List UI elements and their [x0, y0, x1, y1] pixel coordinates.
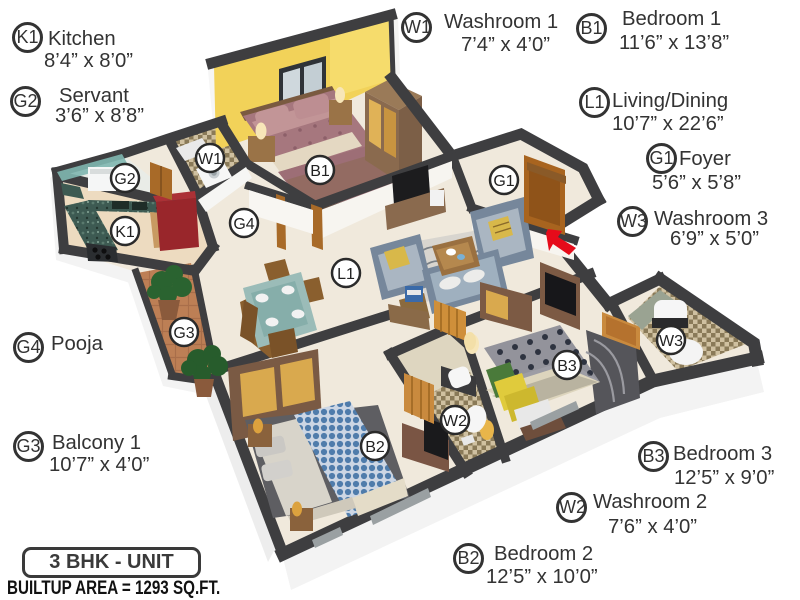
- svg-text:B3: B3: [557, 358, 577, 375]
- svg-text:G3: G3: [173, 325, 194, 342]
- svg-text:W2: W2: [443, 413, 467, 430]
- svg-text:K1: K1: [115, 224, 135, 241]
- svg-text:B2: B2: [365, 439, 385, 456]
- svg-text:G4: G4: [233, 216, 254, 233]
- svg-text:G1: G1: [493, 173, 514, 190]
- svg-text:L1: L1: [337, 266, 355, 283]
- svg-text:W3: W3: [659, 333, 683, 350]
- svg-text:B1: B1: [310, 163, 330, 180]
- svg-text:W1: W1: [198, 151, 222, 168]
- svg-text:G2: G2: [114, 171, 135, 188]
